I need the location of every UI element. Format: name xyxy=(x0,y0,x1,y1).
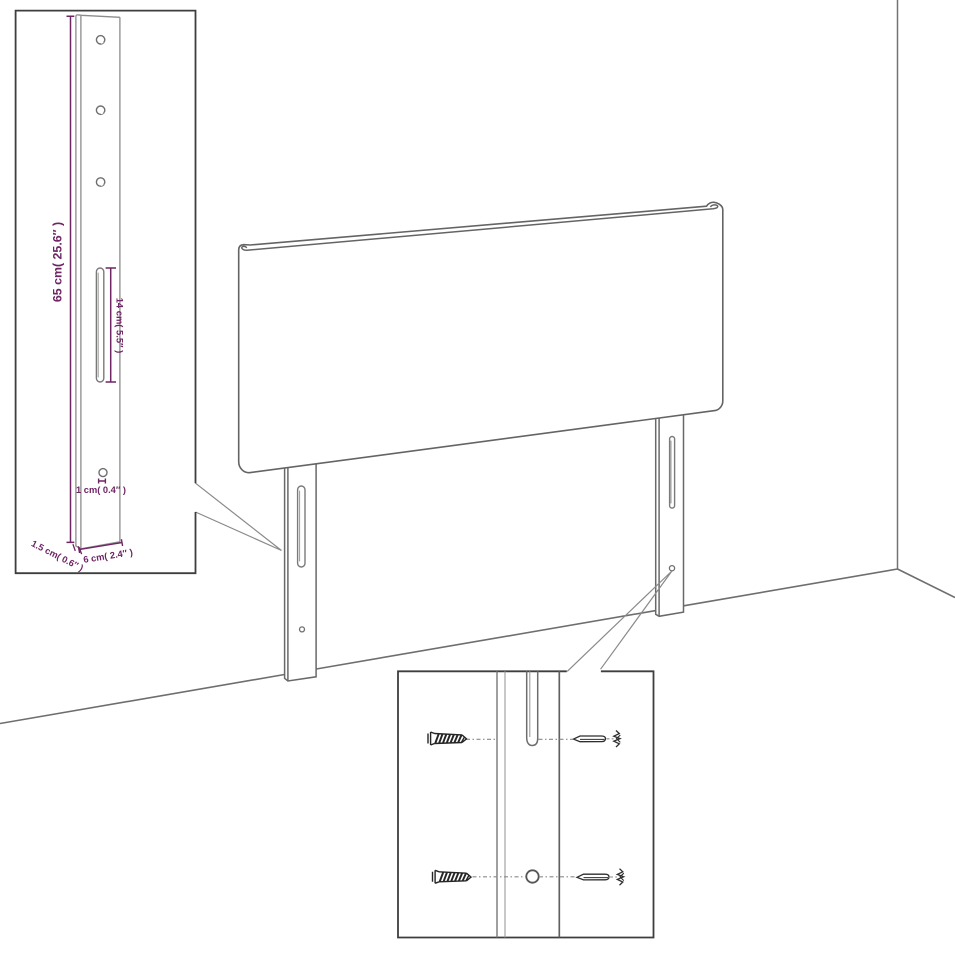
svg-text:1 cm( 0.4″ ): 1 cm( 0.4″ ) xyxy=(76,485,126,495)
svg-text:65 cm( 25.6″ ): 65 cm( 25.6″ ) xyxy=(51,222,65,302)
svg-text:14 cm( 5.5″ ): 14 cm( 5.5″ ) xyxy=(115,298,126,354)
